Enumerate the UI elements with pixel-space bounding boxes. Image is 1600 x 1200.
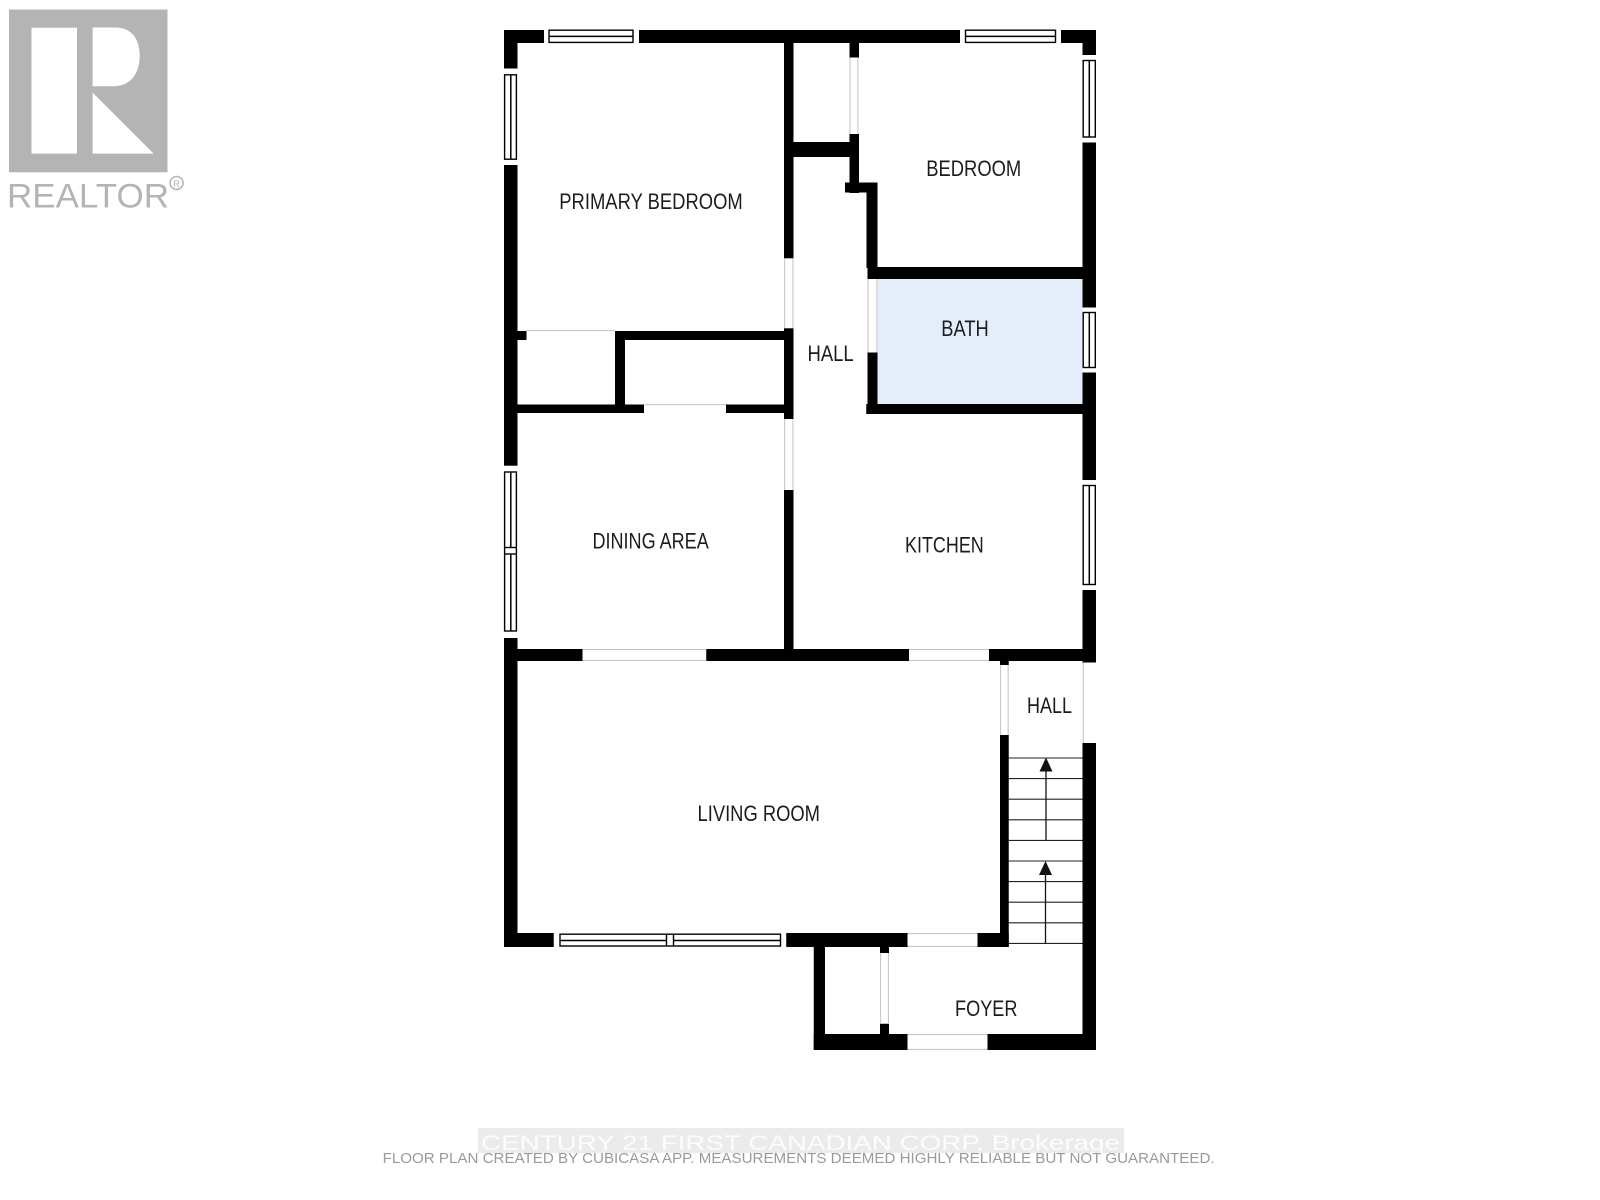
svg-text:PRIMARY BEDROOM: PRIMARY BEDROOM [559,189,743,214]
svg-text:REALTOR: REALTOR [7,178,169,216]
svg-text:FOYER: FOYER [955,996,1018,1021]
svg-text:LIVING ROOM: LIVING ROOM [698,801,821,826]
svg-text:R: R [173,179,180,190]
svg-text:BEDROOM: BEDROOM [926,156,1021,181]
svg-text:HALL: HALL [807,341,853,366]
svg-text:KITCHEN: KITCHEN [905,533,984,558]
svg-text:FLOOR PLAN CREATED BY CUBICASA: FLOOR PLAN CREATED BY CUBICASA APP. MEAS… [383,1150,1215,1167]
svg-text:HALL: HALL [1027,693,1072,718]
svg-text:DINING AREA: DINING AREA [592,529,708,554]
svg-text:BATH: BATH [941,316,989,341]
